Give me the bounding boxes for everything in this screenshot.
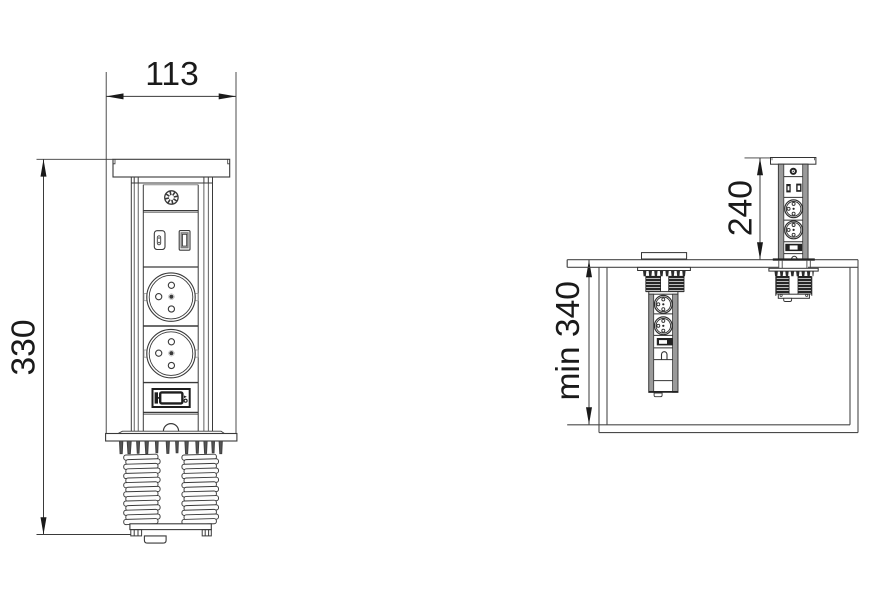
- svg-text:min 340: min 340: [550, 281, 587, 400]
- svg-text:113: 113: [145, 56, 199, 93]
- svg-text:240: 240: [722, 180, 759, 236]
- svg-text:330: 330: [6, 319, 43, 375]
